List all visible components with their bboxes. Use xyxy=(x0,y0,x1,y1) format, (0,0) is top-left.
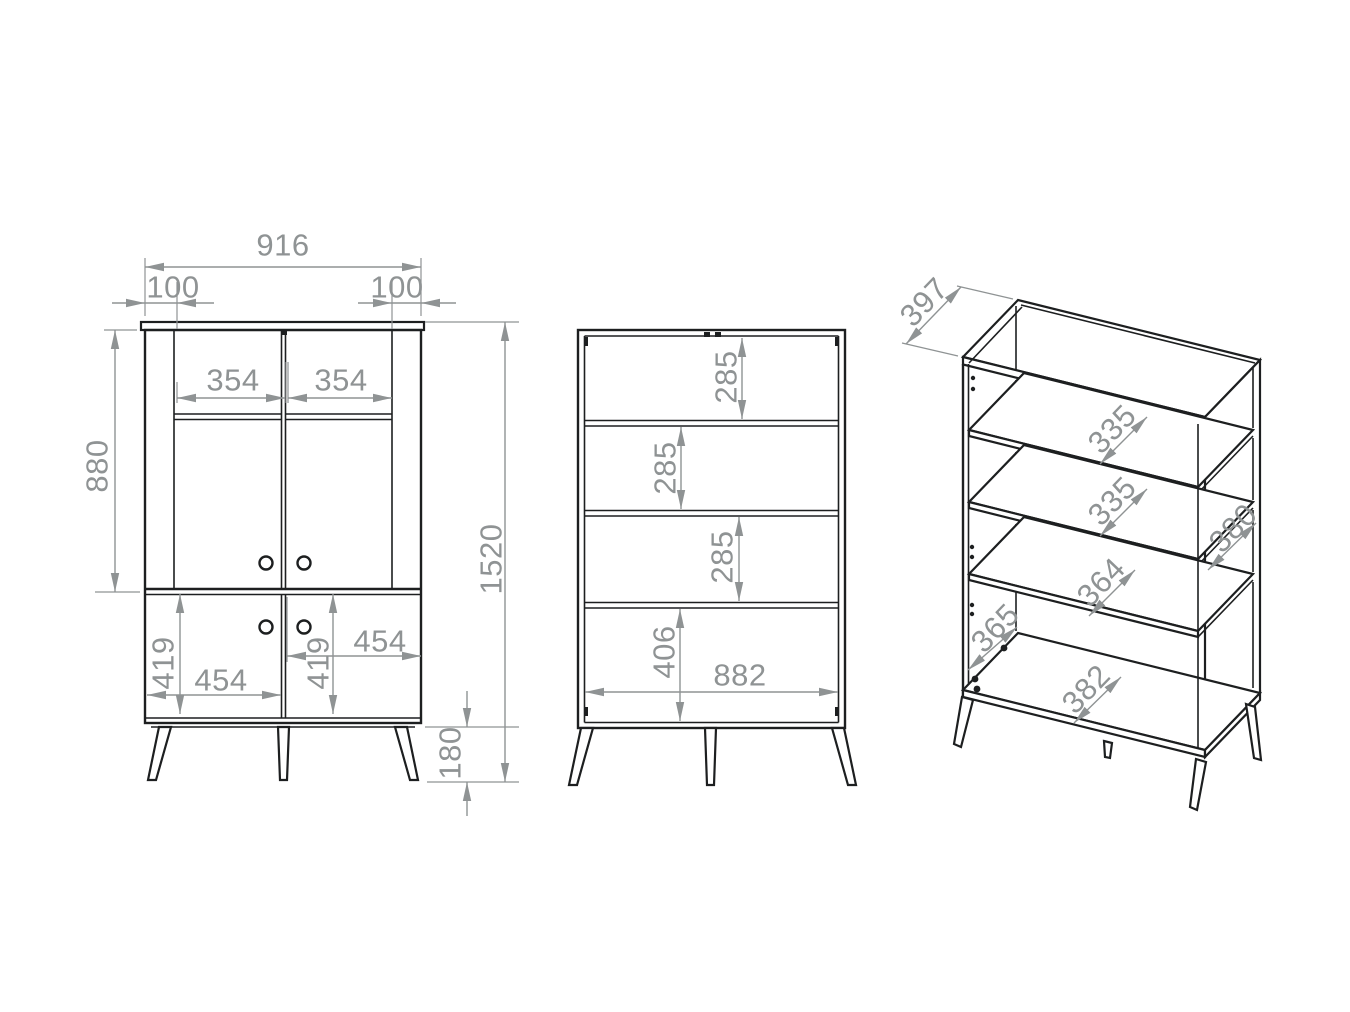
dim-compartment-2: 285 xyxy=(648,441,683,494)
front-cabinet-outline xyxy=(141,322,424,727)
isometric-view: 397 335 335 380 364 365 382 xyxy=(893,271,1264,810)
furniture-dimension-drawing: 916 100 100 354 354 880 1 xyxy=(0,0,1350,1012)
dim-right-door-height: 419 xyxy=(301,636,336,689)
dim-right-glass-width: 354 xyxy=(314,363,367,398)
front-legs xyxy=(148,727,418,780)
dim-right-inset: 100 xyxy=(370,270,423,305)
dim-compartment-3: 285 xyxy=(705,530,740,583)
dim-right-door-width: 454 xyxy=(353,624,406,659)
technical-drawing-page: 916 100 100 354 354 880 1 xyxy=(0,0,1350,1012)
dim-compartment-1: 285 xyxy=(709,350,744,403)
dim-left-door-height: 419 xyxy=(146,636,181,689)
dim-leg-height: 180 xyxy=(433,726,468,779)
front-view: 916 100 100 354 354 880 1 xyxy=(80,228,520,817)
hinge-mark xyxy=(715,332,721,337)
dim-left-inset: 100 xyxy=(146,270,199,305)
dim-interior-width: 882 xyxy=(713,658,766,693)
hinge-mark xyxy=(704,332,710,337)
dim-total-width: 916 xyxy=(256,228,309,263)
dim-left-door-width: 454 xyxy=(194,663,247,698)
section-dimensions: 285 285 285 406 882 xyxy=(585,338,838,721)
dim-left-glass-width: 354 xyxy=(206,363,259,398)
section-view: 285 285 285 406 882 xyxy=(569,330,856,785)
dim-top-depth: 397 xyxy=(893,271,955,334)
dim-upper-section-height: 880 xyxy=(80,439,115,492)
section-legs xyxy=(569,728,856,785)
dim-total-height: 1520 xyxy=(474,524,509,595)
hinge-mark xyxy=(281,330,287,335)
dim-bottom-compartment: 406 xyxy=(647,625,682,678)
